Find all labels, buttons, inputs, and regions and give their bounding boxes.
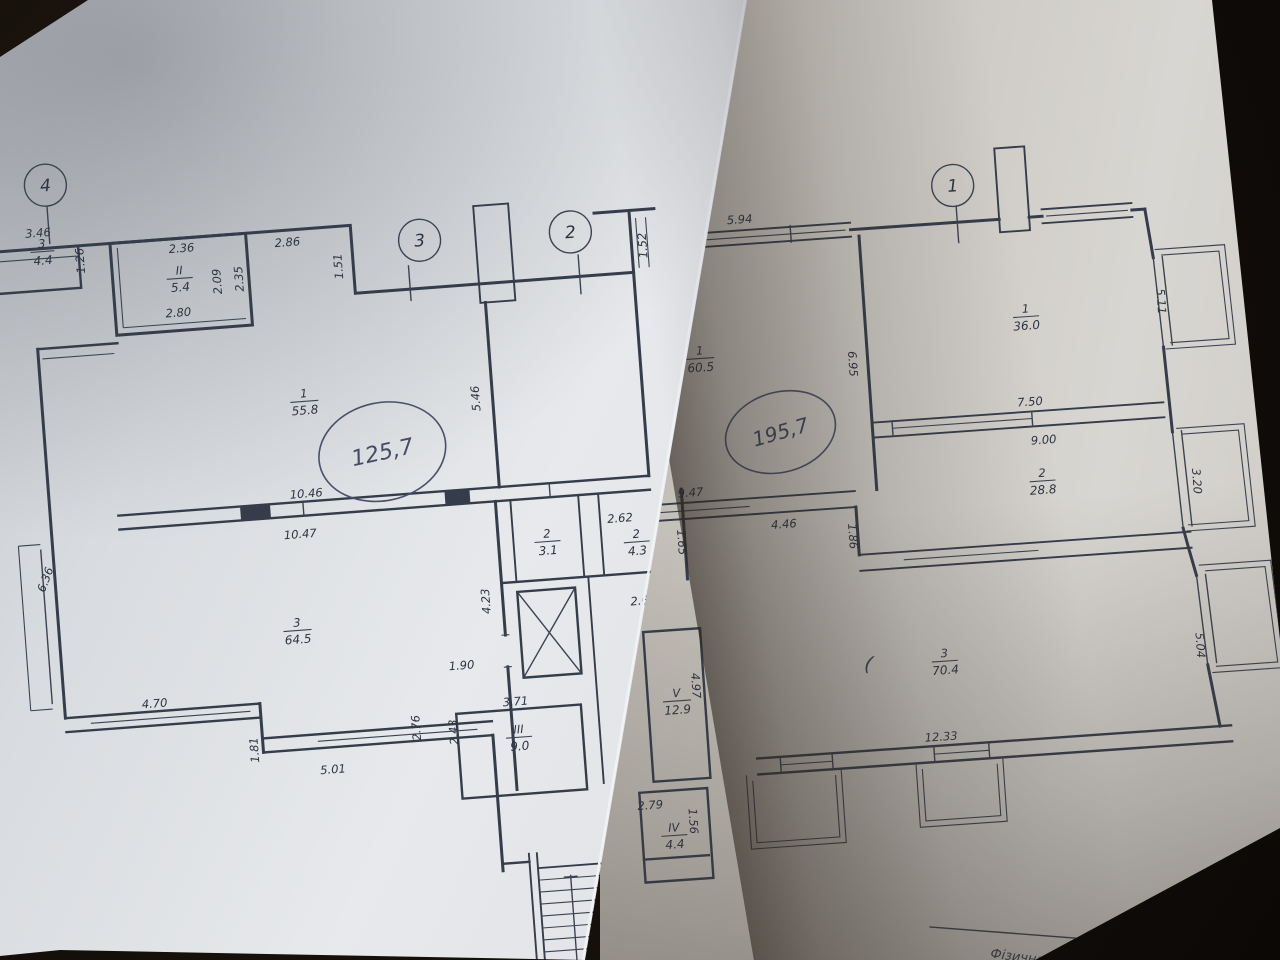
svg-text:1: 1 [1021,301,1029,315]
dim-label: 5.01 [320,761,347,777]
dim-label: 2.09 [209,268,225,295]
svg-text:12.9: 12.9 [664,702,692,718]
svg-text:195,7: 195,7 [750,413,812,452]
svg-text:4.4: 4.4 [33,253,53,268]
room-label-1-36: 1 36.0 [1012,301,1041,334]
dim-label: 2.43 [446,719,462,746]
dim-label: 3.20 [1189,468,1205,495]
dim-label: 4.46 [771,516,798,532]
svg-text:3: 3 [940,646,948,660]
dim-label: 2.79 [637,797,664,813]
dim-label: 6.95 [845,351,861,378]
room-label-1-558: 1 55.8 [289,385,319,418]
dim-label: 10.47 [283,526,318,542]
dim-label: 2.80 [165,305,192,321]
axis-circle-1: 1 [947,176,959,197]
svg-text:1: 1 [695,343,703,357]
svg-text:V: V [672,686,682,701]
dim-label: 1.56 [686,808,702,835]
room-label-neighbor: 3 4.4 [29,236,55,269]
dim-label: 2.62 [607,510,634,526]
svg-text:III: III [513,722,525,737]
dim-label: 5.04 [1193,632,1209,659]
svg-text:1: 1 [300,386,308,401]
room-label-IV-44: IV 4.4 [660,820,688,853]
svg-text:36.0: 36.0 [1013,318,1041,334]
svg-text:2: 2 [1038,466,1046,480]
svg-text:3.1: 3.1 [538,543,558,558]
svg-text:9.0: 9.0 [510,738,530,753]
room-label-2-31: 2 3.1 [533,526,561,559]
svg-text:5.4: 5.4 [170,280,190,295]
title-block-text: Фізичне [990,947,1046,960]
svg-text:3: 3 [293,615,301,630]
svg-text:II: II [175,263,183,278]
svg-text:2: 2 [632,527,640,542]
pen-mark: ( [863,651,876,676]
axis-circle-2: 2 [564,223,576,244]
dim-label: 10.46 [289,485,323,501]
dim-label: 12.33 [924,728,958,744]
room-label-V-129: V 12.9 [662,685,692,718]
dim-label: 4.23 [478,588,494,615]
room-label-1-605: 1 60.5 [685,343,715,376]
dim-label: 2.36 [168,240,195,256]
svg-text:28.8: 28.8 [1029,482,1057,498]
dim-label: 6.36 [34,565,56,594]
dim-label: 9.47 [677,485,704,501]
dim-label: 4.97 [688,672,704,699]
svg-text:2: 2 [543,526,551,541]
dim-label: 5.46 [468,385,484,412]
room-label-III-90: III 9.0 [505,721,533,754]
svg-text:125,7: 125,7 [349,434,416,472]
photo-of-floorplan-sheets: 1 5.94 5.11 6.95 7.50 9.00 3.20 9.47 4.4… [0,0,1280,960]
room-label-2-43: 2 4.3 [623,526,651,559]
svg-text:4.4: 4.4 [665,837,685,852]
dim-label: 1.51 [330,253,346,280]
dim-label: 7.50 [1017,394,1044,410]
svg-text:IV: IV [668,820,681,835]
dim-label: 1.65 [674,529,690,556]
svg-text:64.5: 64.5 [284,632,312,648]
dim-label: 9.00 [1030,432,1057,448]
room-label-3-704: 3 70.4 [931,645,960,678]
axis-circle-4: 4 [39,176,51,197]
dim-label: 5.11 [1153,288,1169,315]
svg-text:70.4: 70.4 [932,662,960,678]
dim-label: 1.81 [246,737,262,764]
dim-label: 2.35 [231,266,247,293]
dim-label: 2.86 [274,234,301,250]
handwritten-total-right: 195,7 [716,378,846,486]
dim-label: 4.70 [141,696,168,712]
dim-label: 1.90 [448,657,475,673]
dim-label: 1.86 [845,523,861,550]
room-label-II-54: II 5.4 [166,262,194,295]
axis-circle-3: 3 [413,231,425,252]
svg-text:55.8: 55.8 [291,402,319,418]
dim-label: 1.26 [72,247,88,274]
svg-text:60.5: 60.5 [687,360,715,376]
dim-label: 5.94 [726,212,753,228]
svg-text:3: 3 [38,236,46,251]
dim-label: 3.71 [502,693,529,709]
dim-label: 2.76 [408,715,424,742]
room-label-3-645: 3 64.5 [282,615,312,648]
svg-text:4.3: 4.3 [627,543,647,558]
room-label-2-288: 2 28.8 [1028,465,1057,498]
